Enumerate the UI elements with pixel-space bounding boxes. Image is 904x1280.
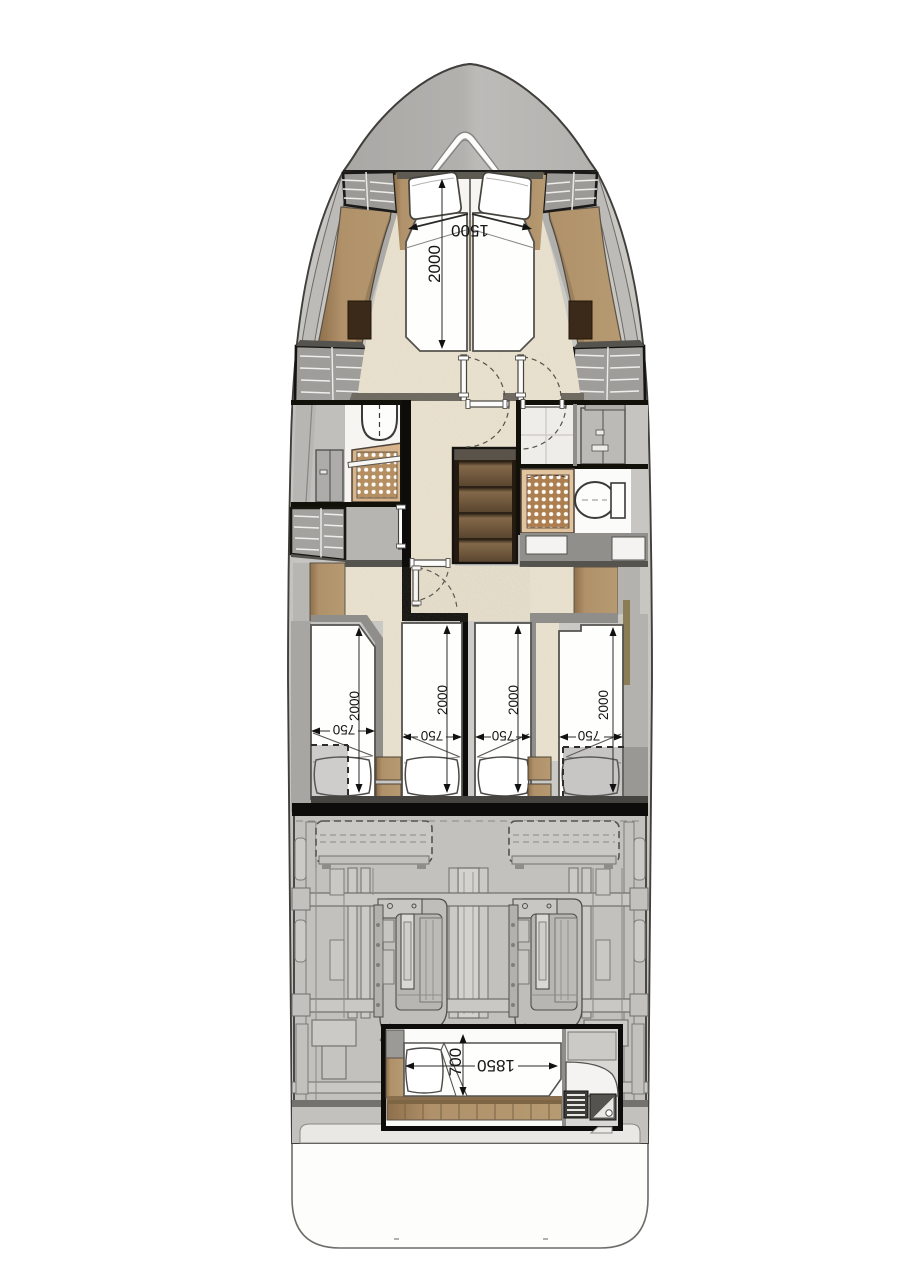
svg-text:750: 750 [421,728,444,743]
svg-text:750: 750 [333,722,356,737]
svg-text:2000: 2000 [506,685,521,715]
svg-text:2000: 2000 [347,691,362,721]
svg-text:1850: 1850 [477,1056,515,1075]
svg-text:750: 750 [578,728,601,743]
svg-text:2000: 2000 [435,685,450,715]
svg-text:750: 750 [492,728,515,743]
svg-text:700: 700 [446,1048,465,1076]
svg-text:2000: 2000 [425,245,444,283]
svg-text:2000: 2000 [596,690,611,720]
svg-text:1500: 1500 [451,221,489,240]
